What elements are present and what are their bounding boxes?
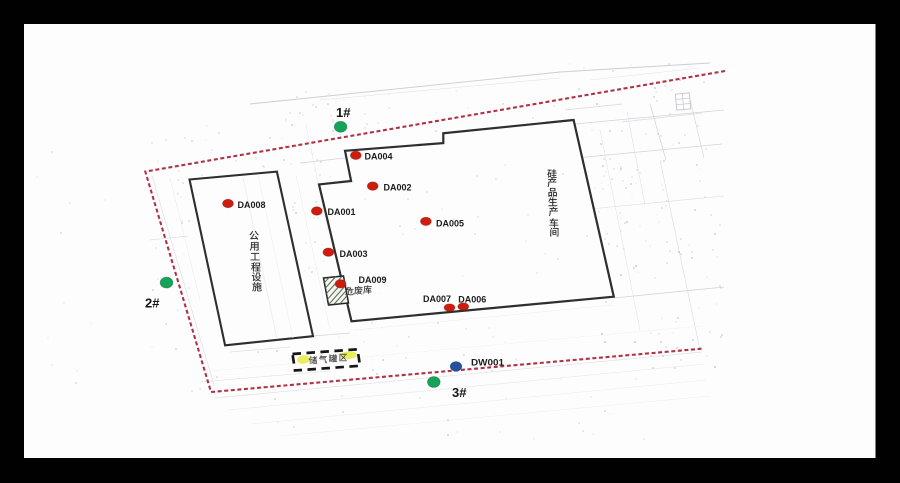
svg-text:DA006: DA006 — [458, 295, 486, 305]
svg-text:DA008: DA008 — [238, 200, 266, 210]
svg-text:1#: 1# — [336, 105, 351, 120]
svg-text:3#: 3# — [452, 385, 467, 400]
svg-text:DA007: DA007 — [423, 294, 451, 304]
svg-text:2#: 2# — [145, 296, 160, 311]
svg-text:DA001: DA001 — [328, 207, 356, 217]
svg-text:DA003: DA003 — [340, 249, 368, 259]
svg-text:DA005: DA005 — [436, 219, 464, 229]
svg-text:DA004: DA004 — [365, 152, 394, 162]
svg-text:DW001: DW001 — [471, 358, 504, 368]
svg-text:DA009: DA009 — [359, 275, 387, 285]
svg-text:DA002: DA002 — [384, 183, 412, 193]
